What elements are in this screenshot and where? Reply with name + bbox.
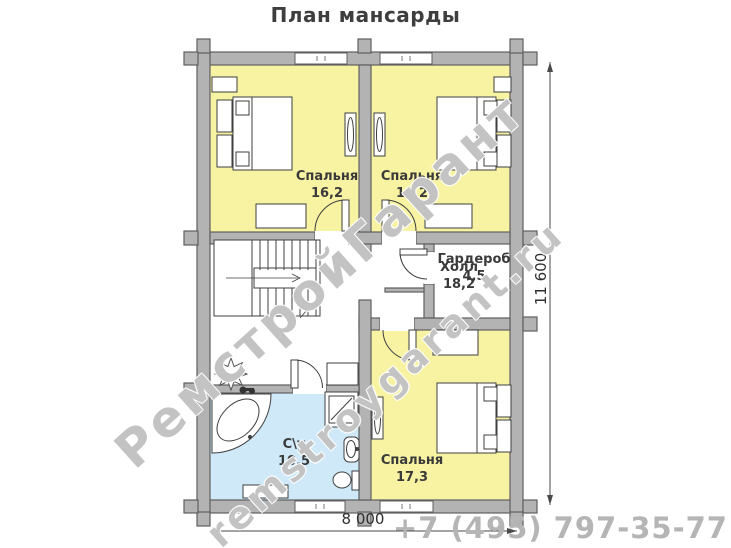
radiator	[372, 397, 383, 439]
nightstand	[497, 135, 511, 167]
plant	[215, 358, 247, 390]
nightstand	[497, 385, 511, 417]
label-bathroom: С\у 10,5	[244, 437, 344, 471]
nightstand	[497, 100, 511, 132]
staircase	[214, 240, 320, 318]
pillow	[484, 435, 497, 449]
room-name: Гардероб	[424, 252, 524, 269]
bathroom-bench	[243, 485, 288, 498]
nightstand	[217, 135, 232, 167]
room-area: 17,3	[362, 470, 462, 487]
toilet	[333, 471, 359, 490]
door-bathroom	[291, 360, 323, 388]
nightstand	[497, 420, 511, 452]
radiator	[374, 113, 385, 156]
room-area: 16,2	[362, 186, 462, 203]
corner-shelf	[212, 77, 237, 92]
dresser	[425, 204, 472, 228]
room-name: С\у	[244, 437, 344, 454]
window-top-right	[380, 53, 432, 64]
label-bedroom-bottom: Спальня 17,3	[362, 453, 462, 487]
dresser	[256, 204, 306, 228]
radiator	[345, 113, 356, 156]
pillow	[484, 387, 497, 401]
dresser	[433, 330, 478, 355]
room-name: Спальня	[362, 453, 462, 470]
page-title: План мансарды	[0, 3, 731, 27]
pillow	[484, 101, 497, 115]
pillow	[484, 152, 497, 166]
pillow	[236, 101, 249, 115]
wall-top	[197, 52, 523, 65]
corner-shelf	[494, 77, 511, 92]
nightstand	[217, 100, 232, 132]
phone-number: +7 (495) 797-35-77	[393, 511, 728, 545]
window-top-left	[295, 53, 347, 64]
wall-left	[197, 52, 210, 513]
hall-closet	[327, 363, 358, 385]
room-name: Спальня	[362, 169, 462, 186]
room-area: 4,5	[424, 269, 524, 286]
dimension-height-label: 11 600	[532, 229, 550, 329]
floor-plan-page: План мансарды	[0, 0, 731, 548]
washbasin	[344, 437, 359, 462]
pillow	[236, 152, 249, 166]
room-area: 10,5	[244, 454, 344, 471]
label-bedroom-top-right: Спальня 16,2	[362, 169, 462, 203]
label-wardrobe: Гардероб 4,5	[424, 252, 524, 286]
